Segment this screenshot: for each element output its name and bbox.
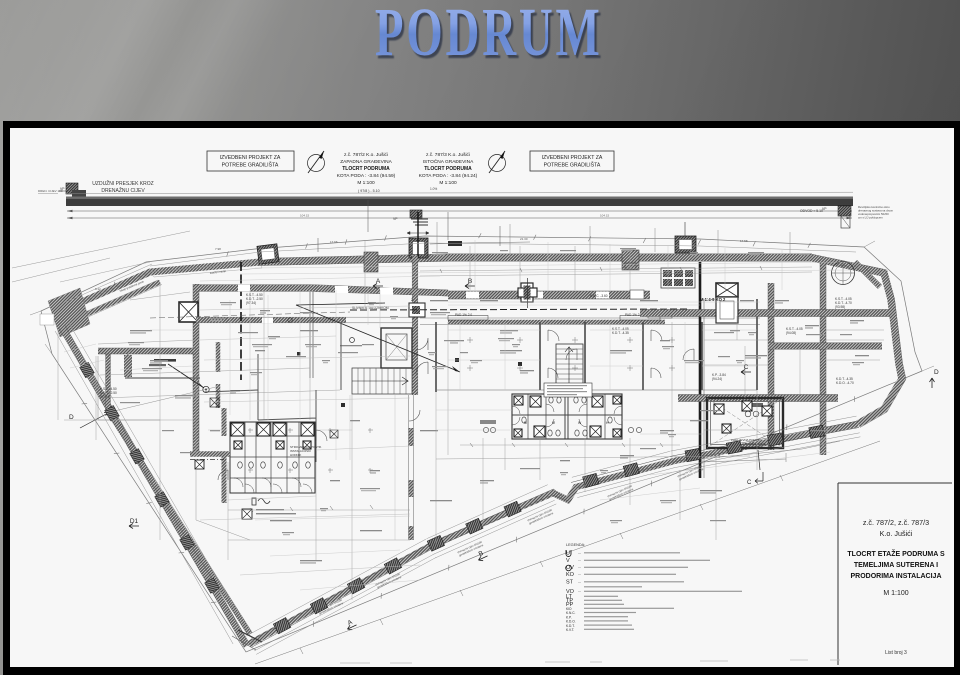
svg-text:—: — xyxy=(578,559,581,563)
svg-text:POTREBE GRADILIŠTA: POTREBE GRADILIŠTA xyxy=(544,162,601,169)
svg-text:104.15: 104.15 xyxy=(600,214,610,218)
svg-text:M 1:4-9 KO 2: M 1:4-9 KO 2 xyxy=(700,297,726,302)
svg-text:—: — xyxy=(578,573,581,577)
svg-text:14.58: 14.58 xyxy=(740,239,748,243)
svg-text:cm s LIJ poklopcem: cm s LIJ poklopcem xyxy=(858,216,883,220)
svg-text:M: M xyxy=(552,421,555,425)
svg-text:z.č. 787/2 K.o. Jušići: z.č. 787/2 K.o. Jušići xyxy=(344,152,388,158)
svg-text:TLOCRT PODRUMA: TLOCRT PODRUMA xyxy=(342,166,390,172)
svg-text:PAD 1% 2.0: PAD 1% 2.0 xyxy=(625,313,642,317)
svg-text:—: — xyxy=(578,590,581,594)
svg-text:C: C xyxy=(747,480,752,486)
svg-text:KOTA PODA : -3.84 (94.24): KOTA PODA : -3.84 (94.24) xyxy=(419,173,478,179)
svg-text:17.66: 17.66 xyxy=(330,240,338,244)
svg-text:VP: VP xyxy=(60,187,65,191)
svg-text:KO: KO xyxy=(566,572,575,578)
svg-text:POTREBE GRADILIŠTA: POTREBE GRADILIŠTA xyxy=(222,162,279,169)
svg-text:1.0%: 1.0% xyxy=(430,187,437,191)
svg-text:IZVEDBENI PROJEKT ZA: IZVEDBENI PROJEKT ZA xyxy=(220,155,281,161)
svg-text:K.D.O. -4.70: K.D.O. -4.70 xyxy=(836,381,854,385)
svg-text:M 1:100: M 1:100 xyxy=(439,180,457,186)
svg-text:7.98: 7.98 xyxy=(215,247,221,251)
svg-text:ODVOD = 5.10: ODVOD = 5.10 xyxy=(800,209,823,213)
svg-text:(93.98): (93.98) xyxy=(835,305,845,309)
svg-text:LEGENDA:: LEGENDA: xyxy=(566,543,585,547)
svg-text:HODNIK: HODNIK xyxy=(290,453,301,457)
svg-text:(97.34): (97.34) xyxy=(246,301,256,305)
svg-text:VP: VP xyxy=(393,217,398,221)
svg-text:z.č. 787/3 K.o. Jušići: z.č. 787/3 K.o. Jušići xyxy=(426,152,470,158)
svg-text:PAD 1% 2.0: PAD 1% 2.0 xyxy=(455,313,472,317)
svg-text:—: — xyxy=(578,580,581,584)
svg-text:List broj 3: List broj 3 xyxy=(885,650,907,656)
svg-text:—: — xyxy=(578,566,581,570)
svg-text:VP: VP xyxy=(822,207,827,211)
svg-text:K.D.T. -4.35: K.D.T. -4.35 xyxy=(612,331,629,335)
svg-text:ISTOČNA GRAĐEVINA: ISTOČNA GRAĐEVINA xyxy=(423,158,474,165)
svg-text:z.č. 787/2, z.č. 787/3: z.č. 787/2, z.č. 787/3 xyxy=(863,518,929,527)
svg-text:IZVEDBENI PROJEKT ZA: IZVEDBENI PROJEKT ZA xyxy=(542,155,603,161)
svg-text:DRENAŽNU CIJEV: DRENAŽNU CIJEV xyxy=(101,186,145,194)
svg-text:(97.34): (97.34) xyxy=(100,395,110,399)
svg-text:ST: ST xyxy=(566,580,574,586)
svg-text:K.V.T.: K.V.T. xyxy=(566,628,574,632)
svg-text:( 97/8 ) - 5.10: ( 97/8 ) - 5.10 xyxy=(358,189,380,193)
svg-text:K.N.C. -3.60: K.N.C. -3.60 xyxy=(590,294,608,298)
svg-text:9.12: 9.12 xyxy=(95,287,101,291)
svg-text:TEMELJIMA SUTERENA I: TEMELJIMA SUTERENA I xyxy=(854,562,938,569)
svg-text:TLOCRT PODRUMA: TLOCRT PODRUMA xyxy=(424,166,472,172)
svg-text:K.o. Jušići: K.o. Jušići xyxy=(880,529,913,538)
svg-text:V: V xyxy=(566,558,570,564)
svg-text:M: M xyxy=(524,421,527,425)
svg-text:M 1:100: M 1:100 xyxy=(883,590,908,597)
svg-text:(94.08): (94.08) xyxy=(786,331,796,335)
svg-text:ZAPADNA GRAĐEVINA: ZAPADNA GRAĐEVINA xyxy=(340,159,392,165)
svg-text:KOTA PODA : -3.84 (94.59): KOTA PODA : -3.84 (94.59) xyxy=(337,173,396,179)
svg-text:PRODORIMA INSTALACIJA: PRODORIMA INSTALACIJA xyxy=(851,573,942,580)
svg-text:D: D xyxy=(934,369,939,376)
svg-text:D1: D1 xyxy=(130,518,139,525)
svg-text:—: — xyxy=(578,551,581,555)
svg-text:21.30: 21.30 xyxy=(520,237,528,241)
svg-text:(94.24): (94.24) xyxy=(712,377,722,381)
svg-text:UZDUŽNI PRESJEK KROZ: UZDUŽNI PRESJEK KROZ xyxy=(92,179,153,187)
svg-text:M 1:100: M 1:100 xyxy=(357,180,375,186)
svg-text:2: 2 xyxy=(411,298,413,302)
svg-text:104.15: 104.15 xyxy=(300,214,310,218)
svg-text:TLOCRT ETAŽE PODRUMA S: TLOCRT ETAŽE PODRUMA S xyxy=(847,549,945,558)
